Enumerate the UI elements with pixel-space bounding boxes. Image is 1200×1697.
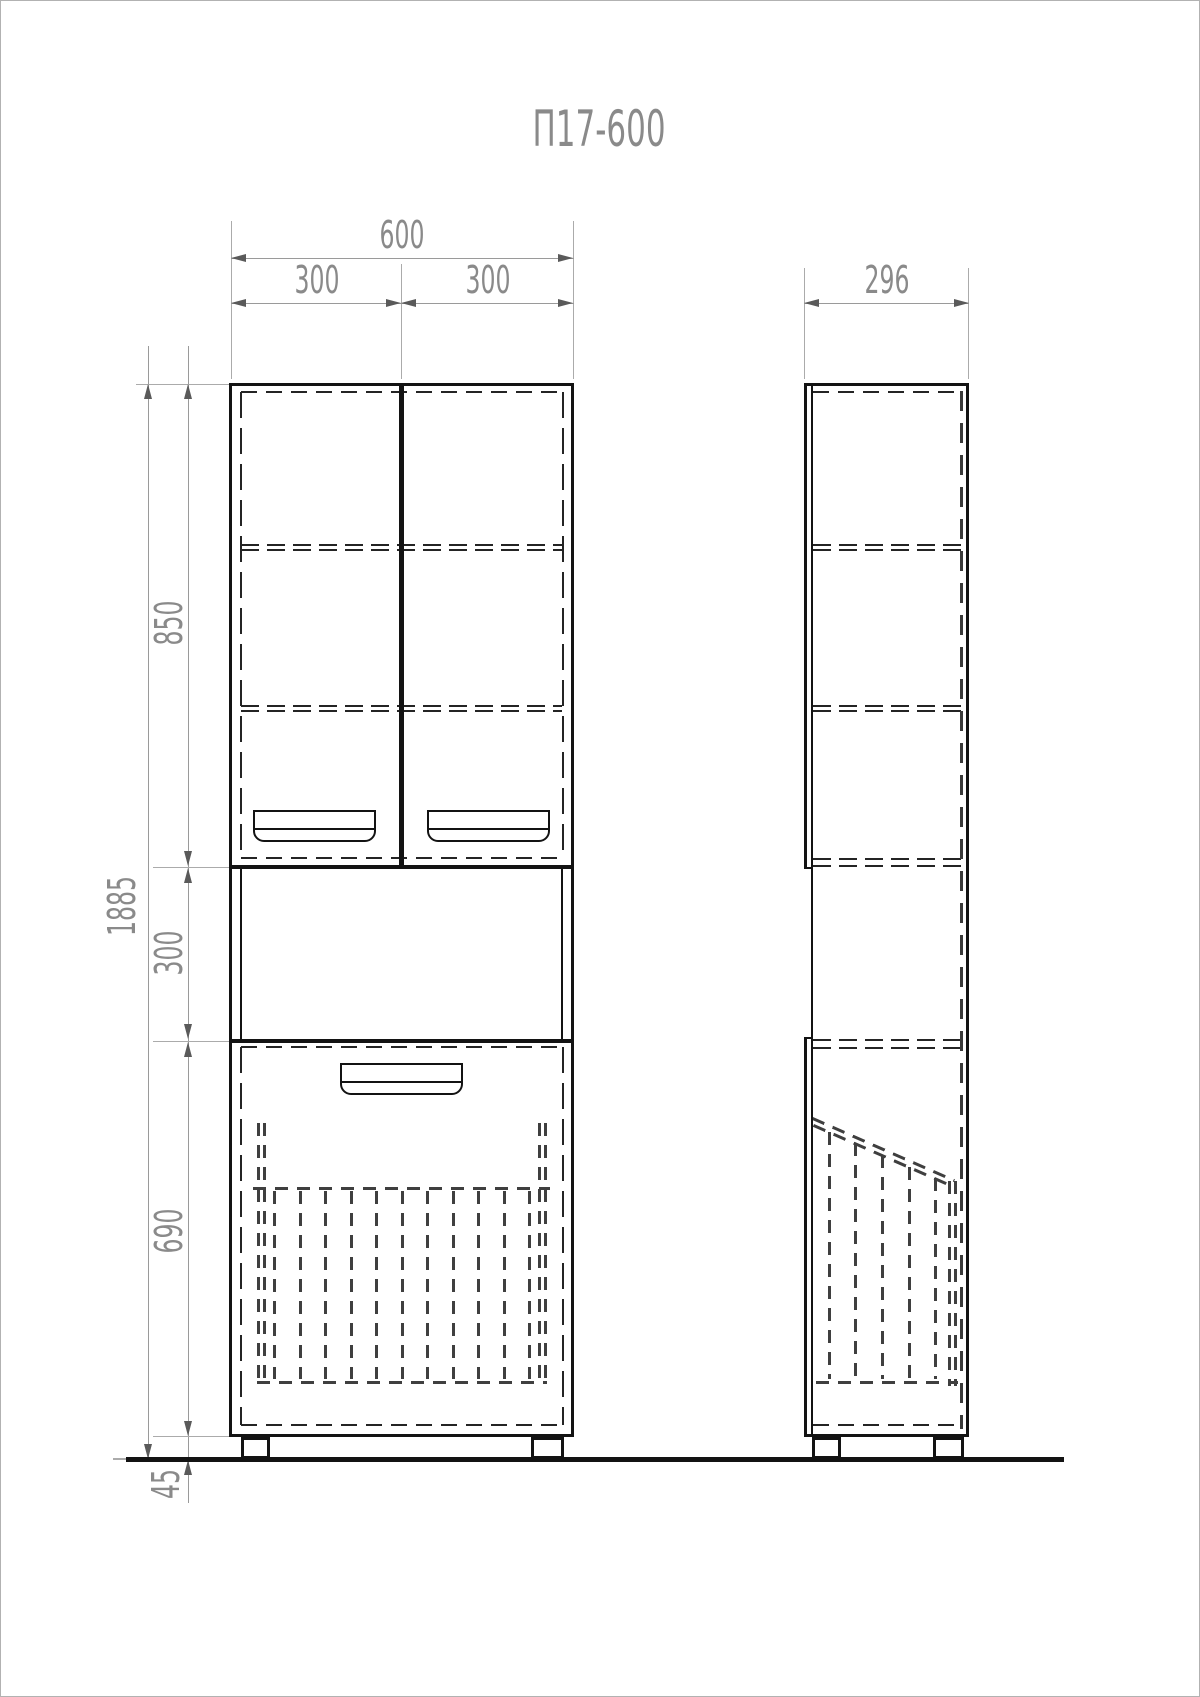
side-back-foot: [933, 1437, 964, 1459]
basket-slat: [828, 1132, 831, 1379]
side-door-bottom-step: [804, 867, 813, 869]
technical-drawing-canvas: П17-600 600 300 300 296: [0, 0, 1200, 1697]
basket-slat: [881, 1155, 884, 1379]
floor-extension-tick: [113, 1458, 127, 1460]
basket-slat: [934, 1178, 937, 1379]
side-basket-slats: [1, 1, 1199, 1696]
side-carcass-front-upper: [811, 383, 813, 869]
basket-slat: [854, 1143, 857, 1379]
side-back-edge: [966, 383, 969, 1437]
side-niche-front-edge: [811, 867, 813, 1039]
side-carcass-front-lower: [811, 1037, 813, 1436]
side-door-top-step: [804, 1037, 813, 1039]
side-top-edge: [804, 383, 969, 386]
side-front-foot: [812, 1437, 841, 1459]
side-view: [1, 1, 1199, 1696]
side-upper-door-face: [804, 383, 807, 869]
floor-line: [126, 1457, 1064, 1462]
basket-slat: [908, 1167, 911, 1379]
side-lower-door-face: [804, 1037, 807, 1436]
